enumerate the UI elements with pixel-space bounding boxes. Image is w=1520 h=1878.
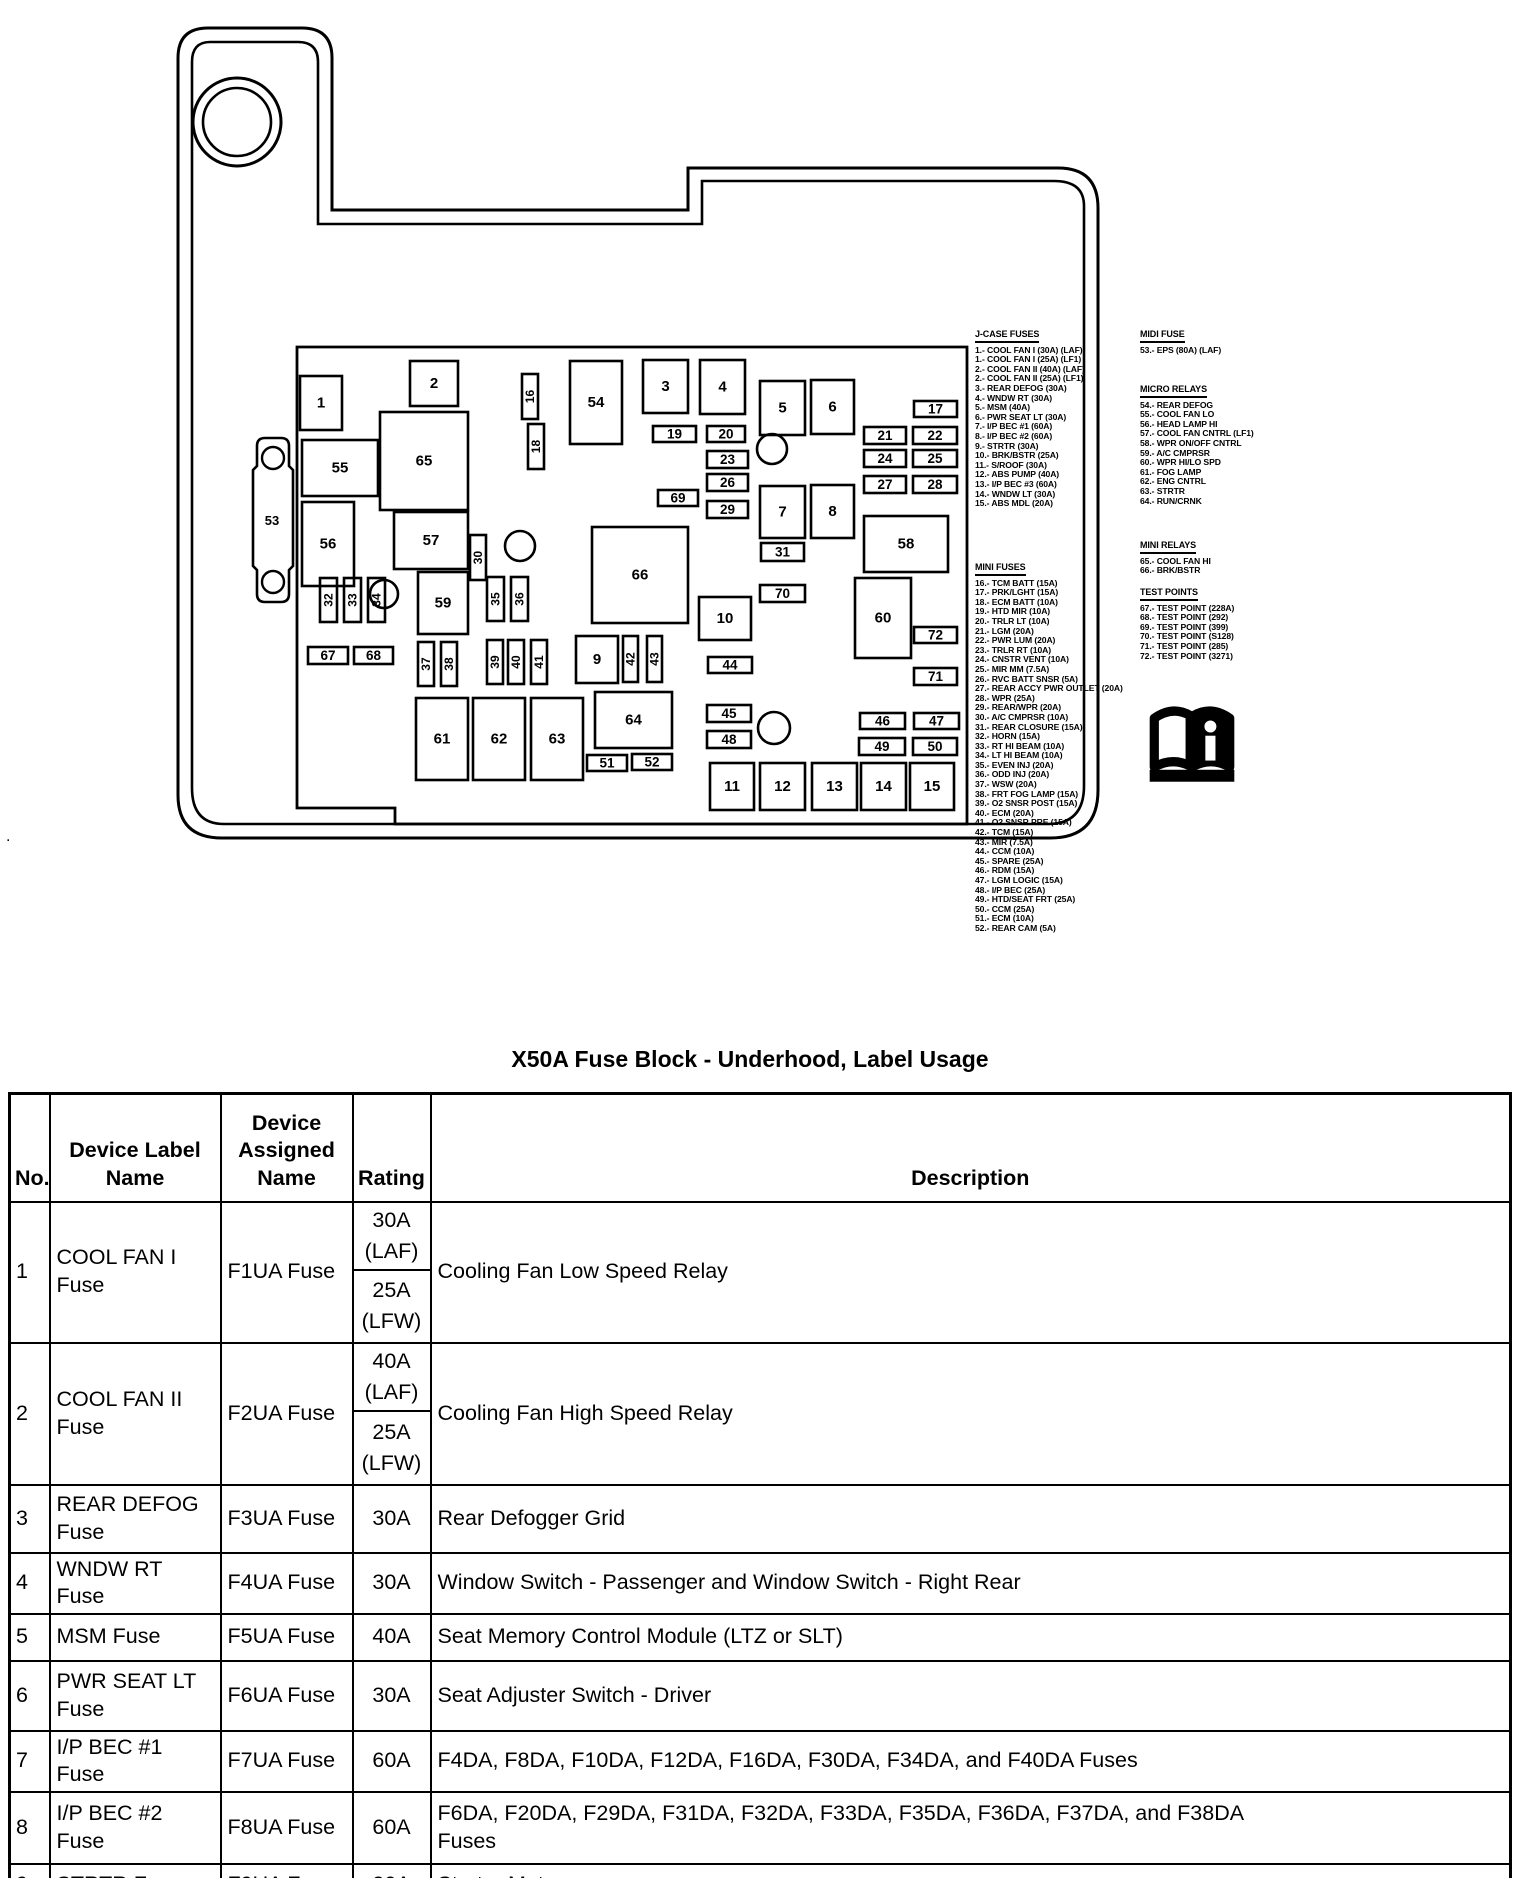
- cell-device-assigned-name: F1UA Fuse: [221, 1202, 353, 1343]
- fuse-box-label-55: 55: [332, 460, 349, 477]
- block-circle: [505, 531, 535, 561]
- cell-device-assigned-name: F4UA Fuse: [221, 1553, 353, 1614]
- fuse-box-label-7: 7: [778, 504, 786, 521]
- legend-header: MIDI FUSE: [1140, 330, 1185, 343]
- cell-no: 5: [10, 1614, 50, 1661]
- fuse-box-label-57: 57: [423, 532, 440, 549]
- legend-header: MICRO RELAYS: [1140, 385, 1207, 398]
- table-row-5: 5MSM FuseF5UA Fuse40ASeat Memory Control…: [10, 1614, 1511, 1661]
- legend-column-fuses: J-CASE FUSES1.- COOL FAN I (30A) (LAF)1.…: [975, 0, 1140, 1040]
- legend-header: MINI RELAYS: [1140, 541, 1196, 554]
- bracket-hole: [262, 571, 284, 593]
- legend-header: MINI FUSES: [975, 563, 1026, 576]
- fuse-box-label-60: 60: [875, 610, 892, 627]
- stray-mark: .: [6, 828, 10, 846]
- column-header-device-assigned-name: Device Assigned Name: [221, 1094, 353, 1202]
- fuse-box-label-45: 45: [721, 706, 737, 721]
- fuse-block-body: [297, 347, 967, 824]
- fuse-box-label-13: 13: [826, 778, 843, 795]
- fuse-box-label-68: 68: [366, 648, 382, 663]
- fuse-box-label-19: 19: [667, 427, 682, 442]
- bracket-label: 53: [265, 513, 279, 528]
- fuse-box-label-27: 27: [877, 477, 892, 492]
- legend-item: 66.- BRK/BSTR: [1140, 566, 1211, 576]
- table-row-7: 7I/P BEC #1 FuseF7UA Fuse60AF4DA, F8DA, …: [10, 1731, 1511, 1792]
- cell-device-label-name: COOL FAN I Fuse: [50, 1202, 221, 1343]
- cell-device-assigned-name: F9UA Fuse: [221, 1864, 353, 1878]
- column-header-device-label-name: Device Label Name: [50, 1094, 221, 1202]
- cell-device-assigned-name: F6UA Fuse: [221, 1661, 353, 1731]
- cover-outline-inner: [192, 42, 1084, 824]
- fuse-box-label-20: 20: [718, 427, 733, 442]
- fuse-box-label-59: 59: [435, 595, 452, 612]
- cell-device-label-name: PWR SEAT LT Fuse: [50, 1661, 221, 1731]
- cell-description: F4DA, F8DA, F10DA, F12DA, F16DA, F30DA, …: [431, 1731, 1511, 1792]
- table-header-row: No.Device Label NameDevice Assigned Name…: [10, 1094, 1511, 1202]
- legend-header: TEST POINTS: [1140, 588, 1198, 601]
- table-row-8: 8I/P BEC #2 FuseF8UA Fuse60AF6DA, F20DA,…: [10, 1792, 1511, 1864]
- cell-rating: 30A: [353, 1553, 431, 1614]
- legend-section-relays-1: MICRO RELAYS54.- REAR DEFOG55.- COOL FAN…: [1140, 385, 1254, 506]
- cell-device-assigned-name: F2UA Fuse: [221, 1343, 353, 1485]
- owner-manual-info-icon: [1146, 696, 1238, 792]
- fuse-box-label-64: 64: [625, 712, 642, 729]
- fuse-box-label-16: 16: [523, 390, 537, 404]
- cell-no: 3: [10, 1485, 50, 1553]
- cell-device-assigned-name: F5UA Fuse: [221, 1614, 353, 1661]
- cell-no: 1: [10, 1202, 50, 1343]
- rating-sub-value: 25A(LFW): [354, 1412, 430, 1483]
- fuse-box-label-36: 36: [513, 592, 527, 606]
- block-circle: [757, 434, 787, 464]
- table-row-4: 4WNDW RT FuseF4UA Fuse30AWindow Switch -…: [10, 1553, 1511, 1614]
- column-header-rating: Rating: [353, 1094, 431, 1202]
- legend-column-relays: MIDI FUSE53.- EPS (80A) (LAF)MICRO RELAY…: [1140, 0, 1335, 1040]
- fuse-box-label-15: 15: [924, 778, 941, 795]
- fuse-box-label-8: 8: [828, 503, 836, 520]
- legend-item: 72.- TEST POINT (3271): [1140, 652, 1234, 662]
- cell-device-label-name: MSM Fuse: [50, 1614, 221, 1661]
- fuse-box-label-42: 42: [624, 652, 638, 666]
- fuse-box-label-25: 25: [927, 451, 943, 466]
- fuse-box-label-6: 6: [828, 399, 836, 416]
- cell-rating: 60A: [353, 1792, 431, 1864]
- cell-rating: 30A: [353, 1485, 431, 1553]
- cell-no: 8: [10, 1792, 50, 1864]
- cell-description: Seat Memory Control Module (LTZ or SLT): [431, 1614, 1511, 1661]
- cell-description: Cooling Fan Low Speed Relay: [431, 1202, 1511, 1343]
- fuse-box-label-50: 50: [927, 739, 942, 754]
- cell-no: 2: [10, 1343, 50, 1485]
- fuse-box-label-72: 72: [928, 628, 943, 643]
- fuse-box-label-17: 17: [928, 402, 943, 417]
- legend-section-relays-0: MIDI FUSE53.- EPS (80A) (LAF): [1140, 330, 1221, 355]
- cell-no: 7: [10, 1731, 50, 1792]
- cell-rating: 60A: [353, 1731, 431, 1792]
- fuse-box-label-23: 23: [720, 452, 736, 467]
- fuse-block-diagram: 5315556265575954345678586660109616263641…: [0, 0, 1520, 1040]
- fuse-box-label-61: 61: [434, 731, 451, 748]
- column-header-description: Description: [431, 1094, 1511, 1202]
- fuse-box-label-3: 3: [661, 378, 669, 395]
- cell-description: Window Switch - Passenger and Window Swi…: [431, 1553, 1511, 1614]
- page-title: X50A Fuse Block - Underhood, Label Usage: [0, 1046, 1500, 1073]
- cell-rating: 40A: [353, 1614, 431, 1661]
- fuse-box-label-2: 2: [430, 375, 438, 392]
- fuse-box-label-24: 24: [877, 451, 893, 466]
- cell-description: Cooling Fan High Speed Relay: [431, 1343, 1511, 1485]
- cell-device-assigned-name: F3UA Fuse: [221, 1485, 353, 1553]
- fuse-box-label-65: 65: [416, 453, 433, 470]
- cell-device-label-name: STRTR Fuse: [50, 1864, 221, 1878]
- fuse-box-label-54: 54: [588, 394, 605, 411]
- rating-sub-value: 40A(LAF): [354, 1344, 430, 1413]
- cell-device-label-name: WNDW RT Fuse: [50, 1553, 221, 1614]
- fuse-box-label-43: 43: [648, 652, 662, 666]
- cell-no: 9: [10, 1864, 50, 1878]
- cell-device-label-name: REAR DEFOG Fuse: [50, 1485, 221, 1553]
- cell-device-label-name: I/P BEC #1 Fuse: [50, 1731, 221, 1792]
- cell-device-label-name: I/P BEC #2 Fuse: [50, 1792, 221, 1864]
- rating-sub-value: 25A(LFW): [354, 1271, 430, 1342]
- legend-item: 64.- RUN/CRNK: [1140, 497, 1254, 507]
- cell-no: 4: [10, 1553, 50, 1614]
- fuse-box-label-21: 21: [877, 428, 893, 443]
- fuse-box-label-35: 35: [489, 592, 503, 606]
- cap-circle-outer: [193, 78, 281, 166]
- fuse-box-label-51: 51: [599, 756, 615, 771]
- fuse-box-label-66: 66: [632, 567, 649, 584]
- service-manual-page: 5315556265575954345678586660109616263641…: [0, 0, 1520, 1878]
- fuse-box-label-69: 69: [670, 491, 685, 506]
- fuse-box-label-52: 52: [644, 755, 659, 770]
- fuse-box-label-10: 10: [717, 610, 734, 627]
- fuse-box-label-30: 30: [471, 551, 485, 565]
- fuse-box-label-46: 46: [875, 714, 891, 729]
- legend-section-relays-3: TEST POINTS67.- TEST POINT (228A)68.- TE…: [1140, 588, 1234, 661]
- fuse-box-label-40: 40: [509, 655, 523, 669]
- table-row-2: 2COOL FAN II FuseF2UA Fuse40A(LAF)25A(LF…: [10, 1343, 1511, 1485]
- fuse-box-label-38: 38: [442, 657, 456, 671]
- fuse-box-label-33: 33: [346, 593, 360, 607]
- fuse-box-label-28: 28: [927, 477, 943, 492]
- cap-circle-inner: [203, 88, 271, 156]
- cell-rating: 30A: [353, 1661, 431, 1731]
- fuse-box-label-71: 71: [928, 669, 944, 684]
- fuse-box-label-58: 58: [898, 536, 915, 553]
- cell-device-assigned-name: F7UA Fuse: [221, 1731, 353, 1792]
- legend-section-relays-2: MINI RELAYS65.- COOL FAN HI66.- BRK/BSTR: [1140, 541, 1211, 576]
- block-circle: [758, 712, 790, 744]
- fuse-box-label-62: 62: [491, 731, 508, 748]
- fuse-box-label-12: 12: [774, 778, 791, 795]
- fuse-box-label-44: 44: [722, 658, 738, 673]
- legend-section-fuses-0: J-CASE FUSES1.- COOL FAN I (30A) (LAF)1.…: [975, 330, 1085, 509]
- fuse-box-label-49: 49: [874, 739, 889, 754]
- rating-sub-value: 30A(LAF): [354, 1203, 430, 1271]
- cell-rating: 30A: [353, 1864, 431, 1878]
- fuse-box-label-70: 70: [775, 586, 790, 601]
- fuse-box-label-48: 48: [721, 732, 737, 747]
- table-row-6: 6PWR SEAT LT FuseF6UA Fuse30ASeat Adjust…: [10, 1661, 1511, 1731]
- cell-rating: 40A(LAF)25A(LFW): [353, 1343, 431, 1485]
- cell-device-label-name: COOL FAN II Fuse: [50, 1343, 221, 1485]
- fuse-box-label-37: 37: [419, 657, 433, 671]
- fuse-box-label-14: 14: [875, 778, 892, 795]
- legend-header: J-CASE FUSES: [975, 330, 1039, 343]
- table-row-3: 3REAR DEFOG FuseF3UA Fuse30ARear Defogge…: [10, 1485, 1511, 1553]
- fuse-box-label-67: 67: [320, 648, 335, 663]
- fuse-box-label-39: 39: [488, 655, 502, 669]
- fuse-box-label-47: 47: [929, 714, 944, 729]
- fuse-box-label-29: 29: [720, 502, 735, 517]
- legend-section-fuses-1: MINI FUSES16.- TCM BATT (15A)17.- PRK/LG…: [975, 563, 1123, 934]
- fuse-box-label-9: 9: [593, 651, 601, 668]
- bracket-hole: [262, 447, 284, 469]
- fuse-label-usage-table: No.Device Label NameDevice Assigned Name…: [8, 1092, 1512, 1878]
- legend-item: 53.- EPS (80A) (LAF): [1140, 346, 1221, 356]
- table-row-1: 1COOL FAN I FuseF1UA Fuse30A(LAF)25A(LFW…: [10, 1202, 1511, 1343]
- fuse-box-label-63: 63: [549, 731, 566, 748]
- fuse-box-label-11: 11: [724, 778, 740, 795]
- fuse-box-label-41: 41: [532, 655, 546, 669]
- cell-description: Starter Motor: [431, 1864, 1511, 1878]
- cell-description: Rear Defogger Grid: [431, 1485, 1511, 1553]
- cell-rating: 30A(LAF)25A(LFW): [353, 1202, 431, 1343]
- cell-no: 6: [10, 1661, 50, 1731]
- column-header-no-: No.: [10, 1094, 50, 1202]
- fuse-box-label-31: 31: [775, 545, 791, 560]
- legend-item: 15.- ABS MDL (20A): [975, 499, 1085, 509]
- fuse-box-label-34: 34: [370, 593, 384, 607]
- fuse-box-label-32: 32: [322, 593, 336, 607]
- legend-item: 52.- REAR CAM (5A): [975, 924, 1123, 934]
- fuse-box-label-56: 56: [320, 536, 337, 553]
- fuse-box-label-22: 22: [927, 428, 942, 443]
- fuse-box-label-4: 4: [718, 379, 727, 396]
- cell-description: F6DA, F20DA, F29DA, F31DA, F32DA, F33DA,…: [431, 1792, 1511, 1864]
- fuse-box-label-26: 26: [720, 475, 736, 490]
- cell-device-assigned-name: F8UA Fuse: [221, 1792, 353, 1864]
- table-row-9: 9STRTR FuseF9UA Fuse30AStarter Motor: [10, 1864, 1511, 1878]
- fuse-box-label-1: 1: [317, 395, 325, 412]
- fuse-box-label-5: 5: [778, 400, 786, 417]
- fuse-box-label-18: 18: [529, 440, 543, 454]
- cell-description: Seat Adjuster Switch - Driver: [431, 1661, 1511, 1731]
